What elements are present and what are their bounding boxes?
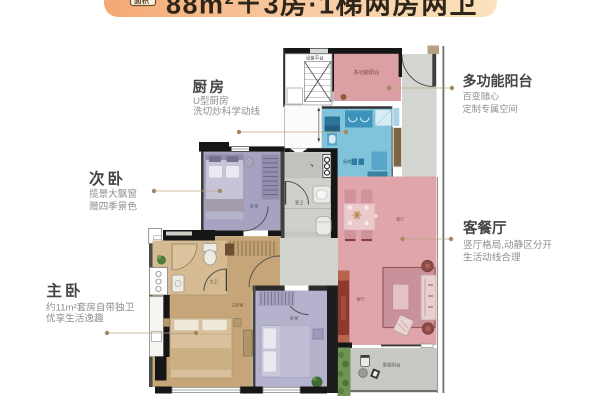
svg-text:约11m²套房自带独卫: 约11m²套房自带独卫 [46,302,135,314]
svg-text:餐厅: 餐厅 [396,216,404,223]
svg-text:百变随心: 百变随心 [463,91,500,102]
svg-text:多功能阳台: 多功能阳台 [354,68,380,76]
svg-text:U型厨房: U型厨房 [193,95,229,107]
svg-text:洗切炒科学动线: 洗切炒科学动线 [193,106,261,118]
svg-text:面积: 面积 [134,0,149,5]
svg-text:竖厅格局,动静区分开: 竖厅格局,动静区分开 [463,239,552,251]
svg-text:主卧室: 主卧室 [231,302,244,309]
svg-text:卧室: 卧室 [250,203,258,210]
svg-text:揽景大飘窗: 揽景大飘窗 [89,188,137,200]
svg-text:卧室: 卧室 [290,315,298,322]
svg-text:生活动线合理: 生活动线合理 [463,252,521,264]
svg-text:客卫: 客卫 [295,199,303,206]
svg-text:客餐厅: 客餐厅 [462,219,507,237]
svg-text:多功能阳台: 多功能阳台 [463,73,533,89]
svg-text:客厅: 客厅 [357,296,365,303]
svg-text:厨房: 厨房 [193,78,227,96]
svg-text:设备平台: 设备平台 [306,55,324,62]
svg-text:定制专属空间: 定制专属空间 [463,103,518,114]
svg-text:厨房: 厨房 [343,158,351,165]
svg-text:主卧: 主卧 [47,281,84,300]
svg-text:主卫: 主卫 [210,278,218,284]
svg-text:赠四季景色: 赠四季景色 [89,201,137,213]
svg-text:88m²＋3房·1梯两房两卫: 88m²＋3房·1梯两房两卫 [166,0,478,20]
svg-text:次卧: 次卧 [89,169,126,188]
svg-text:景观阳台: 景观阳台 [383,362,401,369]
svg-text:优享生活逸趣: 优享生活逸趣 [46,313,104,325]
